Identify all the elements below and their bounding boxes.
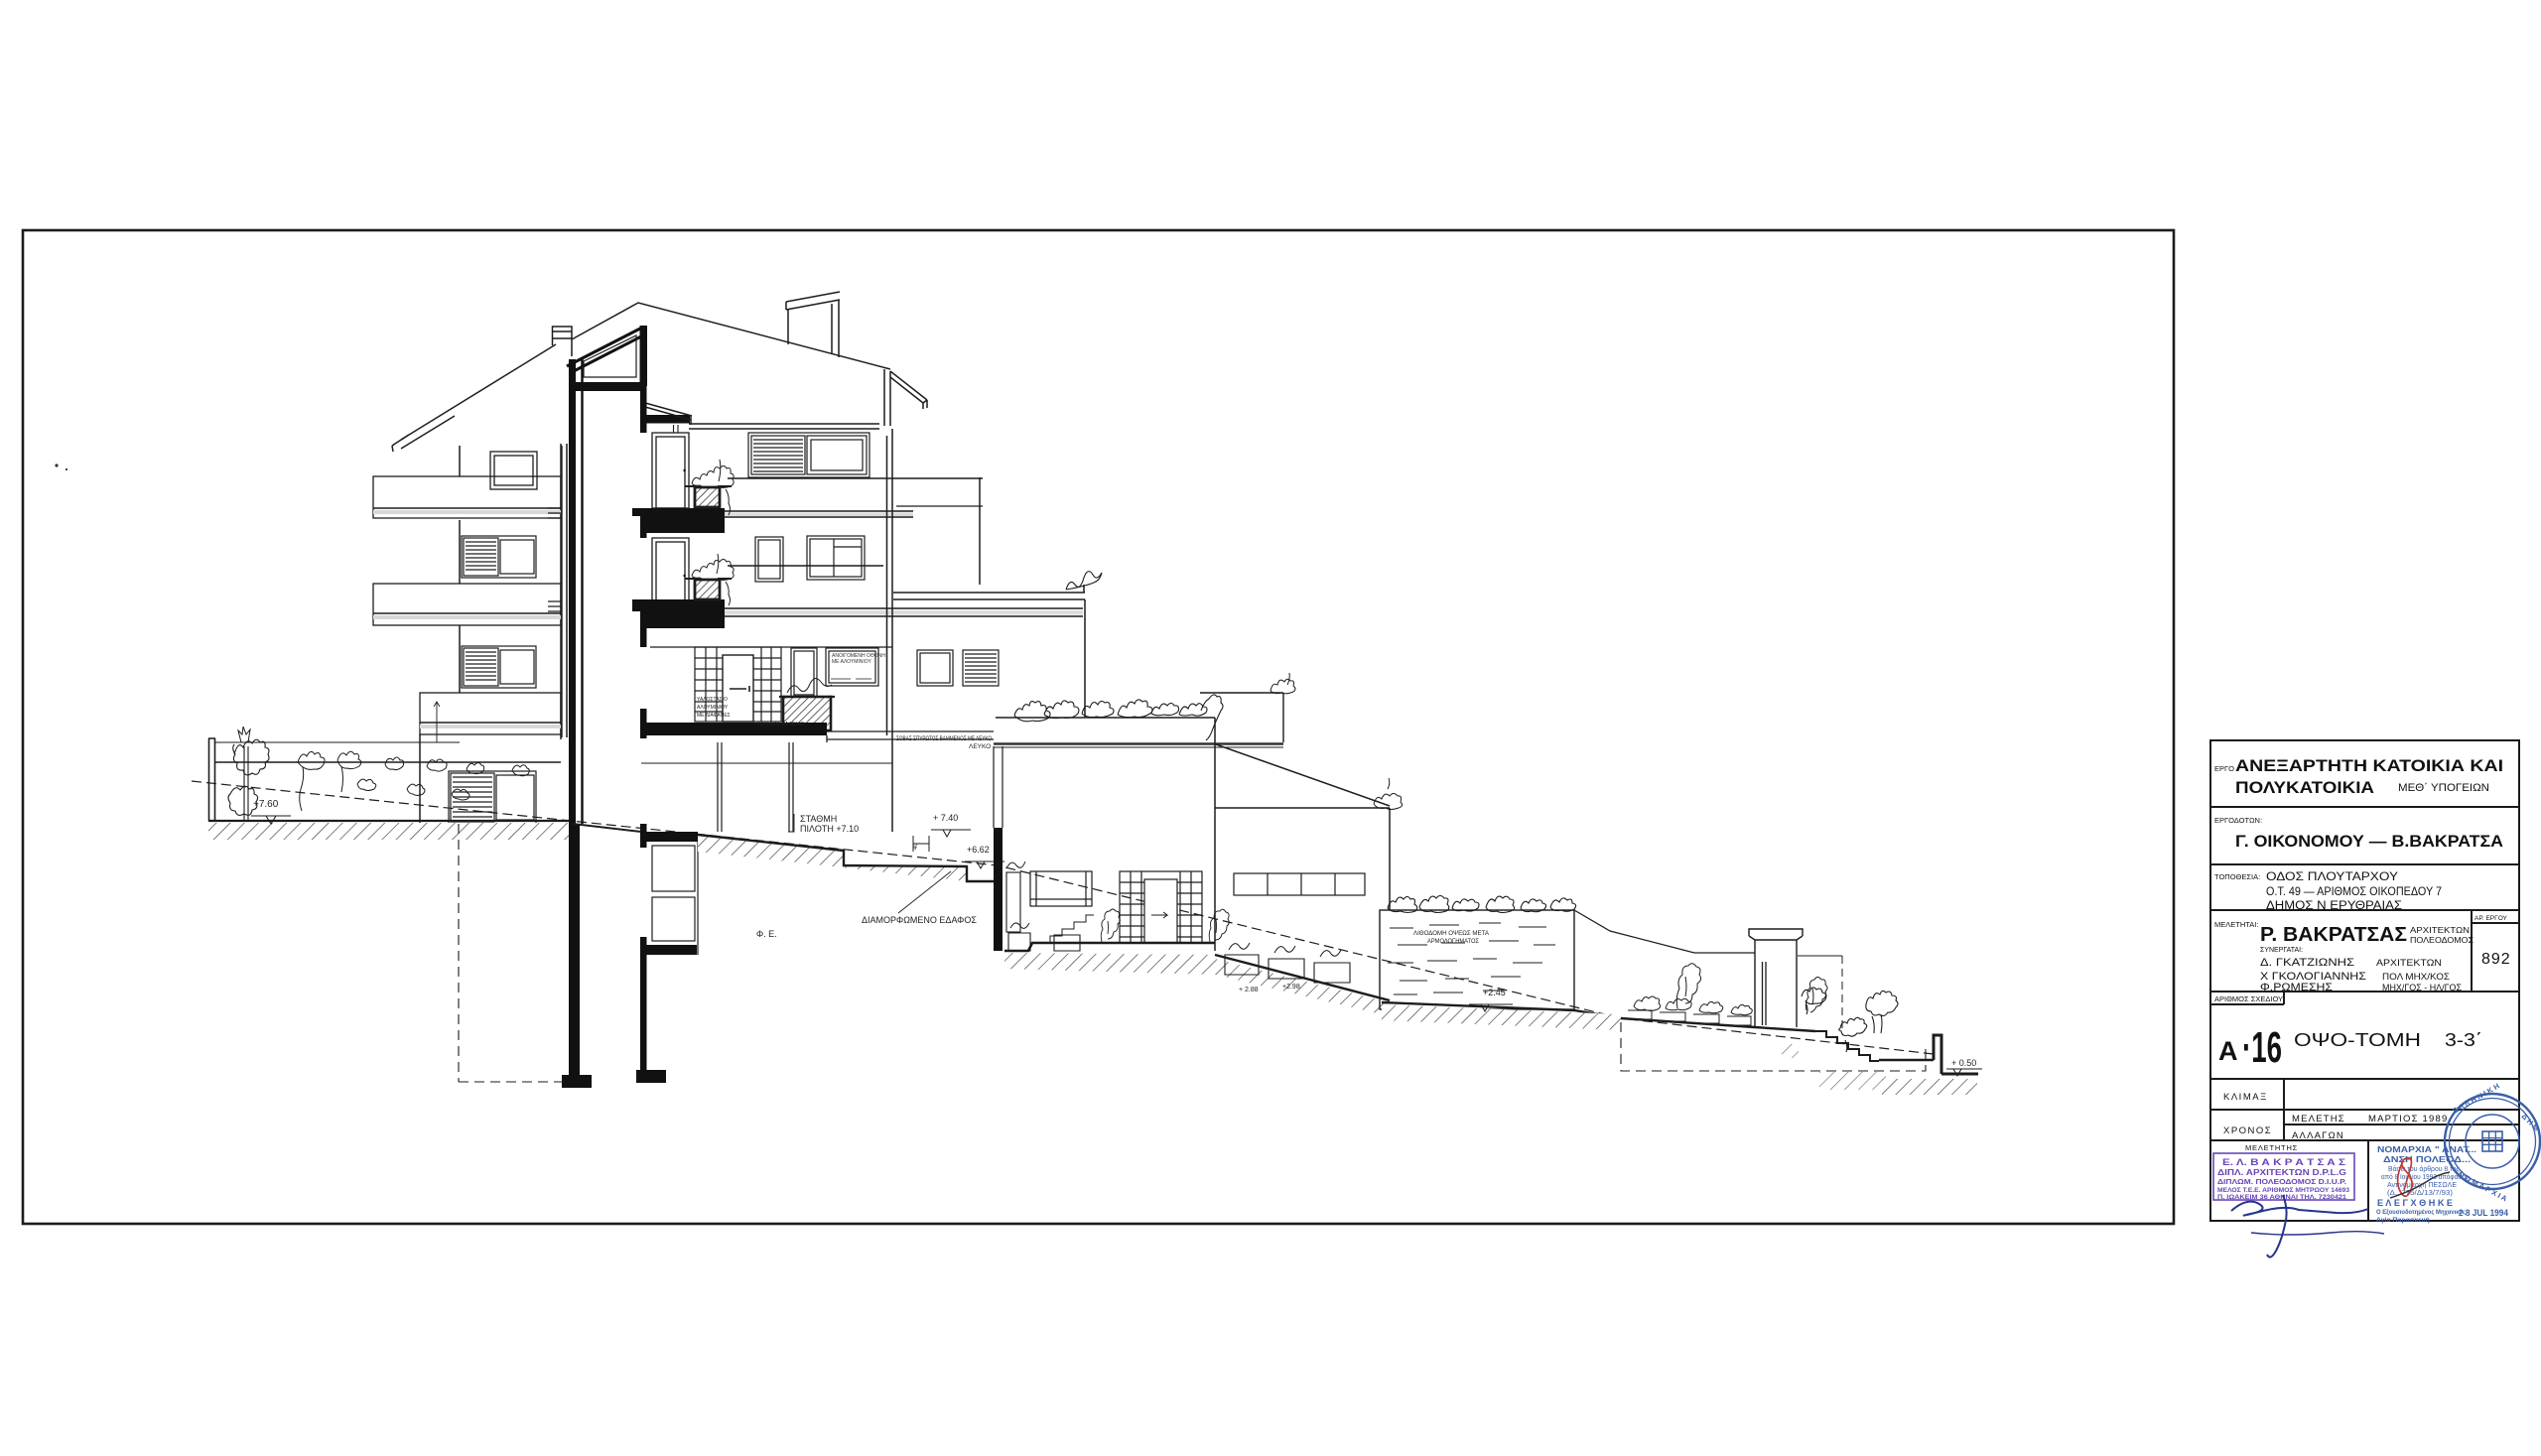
svg-text:40: 40 — [913, 843, 919, 850]
svg-text:892: 892 — [2481, 951, 2511, 968]
svg-text:ΠΙΛΟΤΗ +7.10: ΠΙΛΟΤΗ +7.10 — [800, 824, 859, 834]
svg-text:ΣΥΝΕΡΓΑΤΑΙ:: ΣΥΝΕΡΓΑΤΑΙ: — [2260, 947, 2303, 954]
svg-text:Ρ. ΒΑΚΡΑΤΣΑΣ: Ρ. ΒΑΚΡΑΤΣΑΣ — [2260, 924, 2407, 946]
svg-text:ΤΟΠΟΘΕΣΙΑ:: ΤΟΠΟΘΕΣΙΑ: — [2214, 872, 2260, 881]
svg-text:ΑΡΧΙΤΕΚΤΩΝ: ΑΡΧΙΤΕΚΤΩΝ — [2376, 958, 2442, 969]
svg-text:ΣΤΑΘΜΗ: ΣΤΑΘΜΗ — [800, 814, 837, 824]
svg-text:ΠΟΛΕΟΔΟΜΟΣ: ΠΟΛΕΟΔΟΜΟΣ — [2410, 935, 2474, 945]
svg-text:ΜΕΘ΄ ΥΠΟΓΕΙΩΝ: ΜΕΘ΄ ΥΠΟΓΕΙΩΝ — [2398, 782, 2489, 794]
svg-text:ΑΡΧΙΤΕΚΤΩΝ: ΑΡΧΙΤΕΚΤΩΝ — [2410, 925, 2470, 935]
svg-text:Ε. Λ. Β Α Κ Ρ Α Τ Σ Α Σ: Ε. Λ. Β Α Κ Ρ Α Τ Σ Α Σ — [2222, 1157, 2346, 1167]
svg-text:ΚΛΙΜΑΞ: ΚΛΙΜΑΞ — [2223, 1092, 2268, 1103]
svg-text:ΕΡΓΟΔΟΤΩΝ:: ΕΡΓΟΔΟΤΩΝ: — [2214, 816, 2262, 825]
svg-text:ΜΕΛΕΤΗΣ: ΜΕΛΕΤΗΣ — [2292, 1114, 2345, 1125]
svg-text:ΧΡΟΝΟΣ: ΧΡΟΝΟΣ — [2223, 1125, 2272, 1136]
svg-text:Δ. ΓΚΑΤΖΙΩΝΗΣ: Δ. ΓΚΑΤΖΙΩΝΗΣ — [2260, 957, 2354, 969]
svg-text:ΜΕ ΔΙΑΦΑΝΕΣ: ΜΕ ΔΙΑΦΑΝΕΣ — [697, 713, 731, 719]
svg-text:Αγία Παρασκευή: Αγία Παρασκευή — [2376, 1217, 2430, 1224]
svg-text:·16: ·16 — [2242, 1023, 2282, 1072]
svg-text:ΔΗΜΟΣ Ν ΕΡΥΘΡΑΙΑΣ: ΔΗΜΟΣ Ν ΕΡΥΘΡΑΙΑΣ — [2266, 900, 2402, 912]
svg-text:ΔΙΠΛΩΜ. ΠΟΛΕΟΔΟΜΟΣ D.I.U.P: ΔΙΠΛΩΜ. ΠΟΛΕΟΔΟΜΟΣ D.I.U.P. — [2217, 1177, 2346, 1186]
svg-text:ΟΨΟ-ΤΟΜΗ: ΟΨΟ-ΤΟΜΗ — [2294, 1030, 2421, 1050]
svg-text:ΠΟΡΤΑ ΑΣΦΑΛΕΙΑΣ: ΠΟΡΤΑ ΑΣΦΑΛΕΙΑΣ — [754, 722, 805, 728]
svg-text:ΑΛΛΑΓΩΝ: ΑΛΛΑΓΩΝ — [2292, 1130, 2344, 1141]
svg-text:ΠΟΛ ΜΗΧ/ΚΟΣ: ΠΟΛ ΜΗΧ/ΚΟΣ — [2382, 972, 2450, 983]
svg-text:ΔΙΠΛ. ΑΡΧΙΤΕΚΤΩΝ D.P.L.G: ΔΙΠΛ. ΑΡΧΙΤΕΚΤΩΝ D.P.L.G — [2217, 1168, 2346, 1177]
svg-text:ΜΕ ΑΛΟΥΜΙΝΙΟΥ: ΜΕ ΑΛΟΥΜΙΝΙΟΥ — [832, 659, 872, 665]
svg-text:Φ.ΡΩΜΕΣΗΣ: Φ.ΡΩΜΕΣΗΣ — [2260, 982, 2333, 993]
svg-text:ΜΗΧ/ΓΟΣ - ΗΛ/ΓΟΣ: ΜΗΧ/ΓΟΣ - ΗΛ/ΓΟΣ — [2382, 983, 2462, 993]
svg-text:ΛΕΥΚΟ: ΛΕΥΚΟ — [969, 743, 991, 750]
svg-text:+ 7.40: + 7.40 — [933, 813, 958, 823]
svg-text:+2.98: +2.98 — [1282, 984, 1300, 991]
svg-text:ΜΕΛΟΣ Τ.Ε.Ε. ΑΡΙΘΜΟΣ ΜΗΤΡΩΟΥ: ΜΕΛΟΣ Τ.Ε.Ε. ΑΡΙΘΜΟΣ ΜΗΤΡΩΟΥ 14693 — [2217, 1188, 2350, 1194]
svg-text:ΔΙΑΜΟΡΦΩΜΕΝΟ ΕΔΑΦΟΣ: ΔΙΑΜΟΡΦΩΜΕΝΟ ΕΔΑΦΟΣ — [862, 915, 977, 925]
svg-text:3-3΄: 3-3΄ — [2445, 1030, 2482, 1050]
svg-text:+ 2.88: + 2.88 — [1239, 987, 1259, 993]
svg-text:ΑΡΜΟΛΟΓΗΜΑΤΟΣ: ΑΡΜΟΛΟΓΗΜΑΤΟΣ — [1427, 938, 1479, 945]
svg-text:ΕΡΓΟ: ΕΡΓΟ — [2214, 764, 2234, 773]
svg-text:Γ. ΟΙΚΟΝΟΜΟΥ — Β.ΒΑΚΡΑΤΣΑ: Γ. ΟΙΚΟΝΟΜΟΥ — Β.ΒΑΚΡΑΤΣΑ — [2235, 833, 2503, 851]
svg-text:+2.45: +2.45 — [1483, 988, 1506, 997]
svg-text:ΛΙΘΟΔΟΜΗ ΟΨΕΩΣ ΜΕΤΑ: ΛΙΘΟΔΟΜΗ ΟΨΕΩΣ ΜΕΤΑ — [1413, 930, 1490, 937]
svg-text:2 8 JUL 1994: 2 8 JUL 1994 — [2459, 1208, 2509, 1219]
svg-text:ΝΟΜΑΡΧΙΑ " ΑΝΑΤ...: ΝΟΜΑΡΧΙΑ " ΑΝΑΤ... — [2377, 1144, 2476, 1154]
svg-text:ΟΔΟΣ ΠΛΟΥΤΑΡΧΟΥ: ΟΔΟΣ ΠΛΟΥΤΑΡΧΟΥ — [2266, 871, 2398, 883]
svg-text:ΜΕΛΕΤΗΤΗΣ: ΜΕΛΕΤΗΤΗΣ — [2245, 1143, 2298, 1152]
svg-text:ΣΟΒΑΣ ΣΠΥΡΩΤΟΣ ΒΑΜΜΕΝΟΣ ΜΕ Λ: ΣΟΒΑΣ ΣΠΥΡΩΤΟΣ ΒΑΜΜΕΝΟΣ ΜΕ ΛΕΥΚΟ — [896, 735, 992, 742]
svg-text:ΑΛΟΥΜΙΝΙΟΥ: ΑΛΟΥΜΙΝΙΟΥ — [697, 705, 729, 711]
svg-text:ΑΝΕΞΑΡΤΗΤΗ ΚΑΤΟΙΚΙΑ ΚΑΙ: ΑΝΕΞΑΡΤΗΤΗ ΚΑΤΟΙΚΙΑ ΚΑΙ — [2235, 756, 2503, 775]
svg-text:από 8 Ιουλίου 1993 απόφασης: από 8 Ιουλίου 1993 απόφασης — [2381, 1173, 2470, 1181]
svg-text:ΜΕΛΕΤΗΤΑΙ:: ΜΕΛΕΤΗΤΑΙ: — [2214, 920, 2258, 929]
svg-text:Ο.Τ. 49 — ΑΡΙΘΜΟΣ ΟΙΚΟΠΕΔΟΥ: Ο.Τ. 49 — ΑΡΙΘΜΟΣ ΟΙΚΟΠΕΔΟΥ 7 — [2266, 886, 2442, 898]
svg-text:Α: Α — [2218, 1036, 2238, 1066]
svg-text:ΠΟΛΥΚΑΤΟΙΚΙΑ: ΠΟΛΥΚΑΤΟΙΚΙΑ — [2235, 778, 2374, 797]
svg-text:+6.62: +6.62 — [967, 845, 990, 855]
svg-text:+ 0.50: + 0.50 — [1951, 1058, 1976, 1068]
svg-text:ΥΑΛΟΣΤΑΣΙΟ: ΥΑΛΟΣΤΑΣΙΟ — [697, 697, 728, 703]
svg-text:Ε Λ Ε Γ Χ Θ Η Κ Ε: Ε Λ Ε Γ Χ Θ Η Κ Ε — [2377, 1198, 2453, 1209]
svg-text:Φ. Ε.: Φ. Ε. — [756, 929, 777, 939]
svg-text:ΑΡΙΘΜΟΣ ΣΧΕΔΙΟΥ: ΑΡΙΘΜΟΣ ΣΧΕΔΙΟΥ — [2214, 994, 2283, 1003]
svg-text:ΑΡ. ΕΡΓΟΥ: ΑΡ. ΕΡΓΟΥ — [2474, 915, 2508, 922]
svg-text:Ο Εξουσιοδοτημένος Μηχανικός: Ο Εξουσιοδοτημένος Μηχανικός — [2376, 1209, 2466, 1216]
svg-text:ΔΝΣΗ ΠΟΛΕΟΔ...: ΔΝΣΗ ΠΟΛΕΟΔ... — [2383, 1154, 2471, 1164]
svg-text:ΜΑΡΤΙΟΣ 1989: ΜΑΡΤΙΟΣ 1989 — [2368, 1114, 2448, 1125]
